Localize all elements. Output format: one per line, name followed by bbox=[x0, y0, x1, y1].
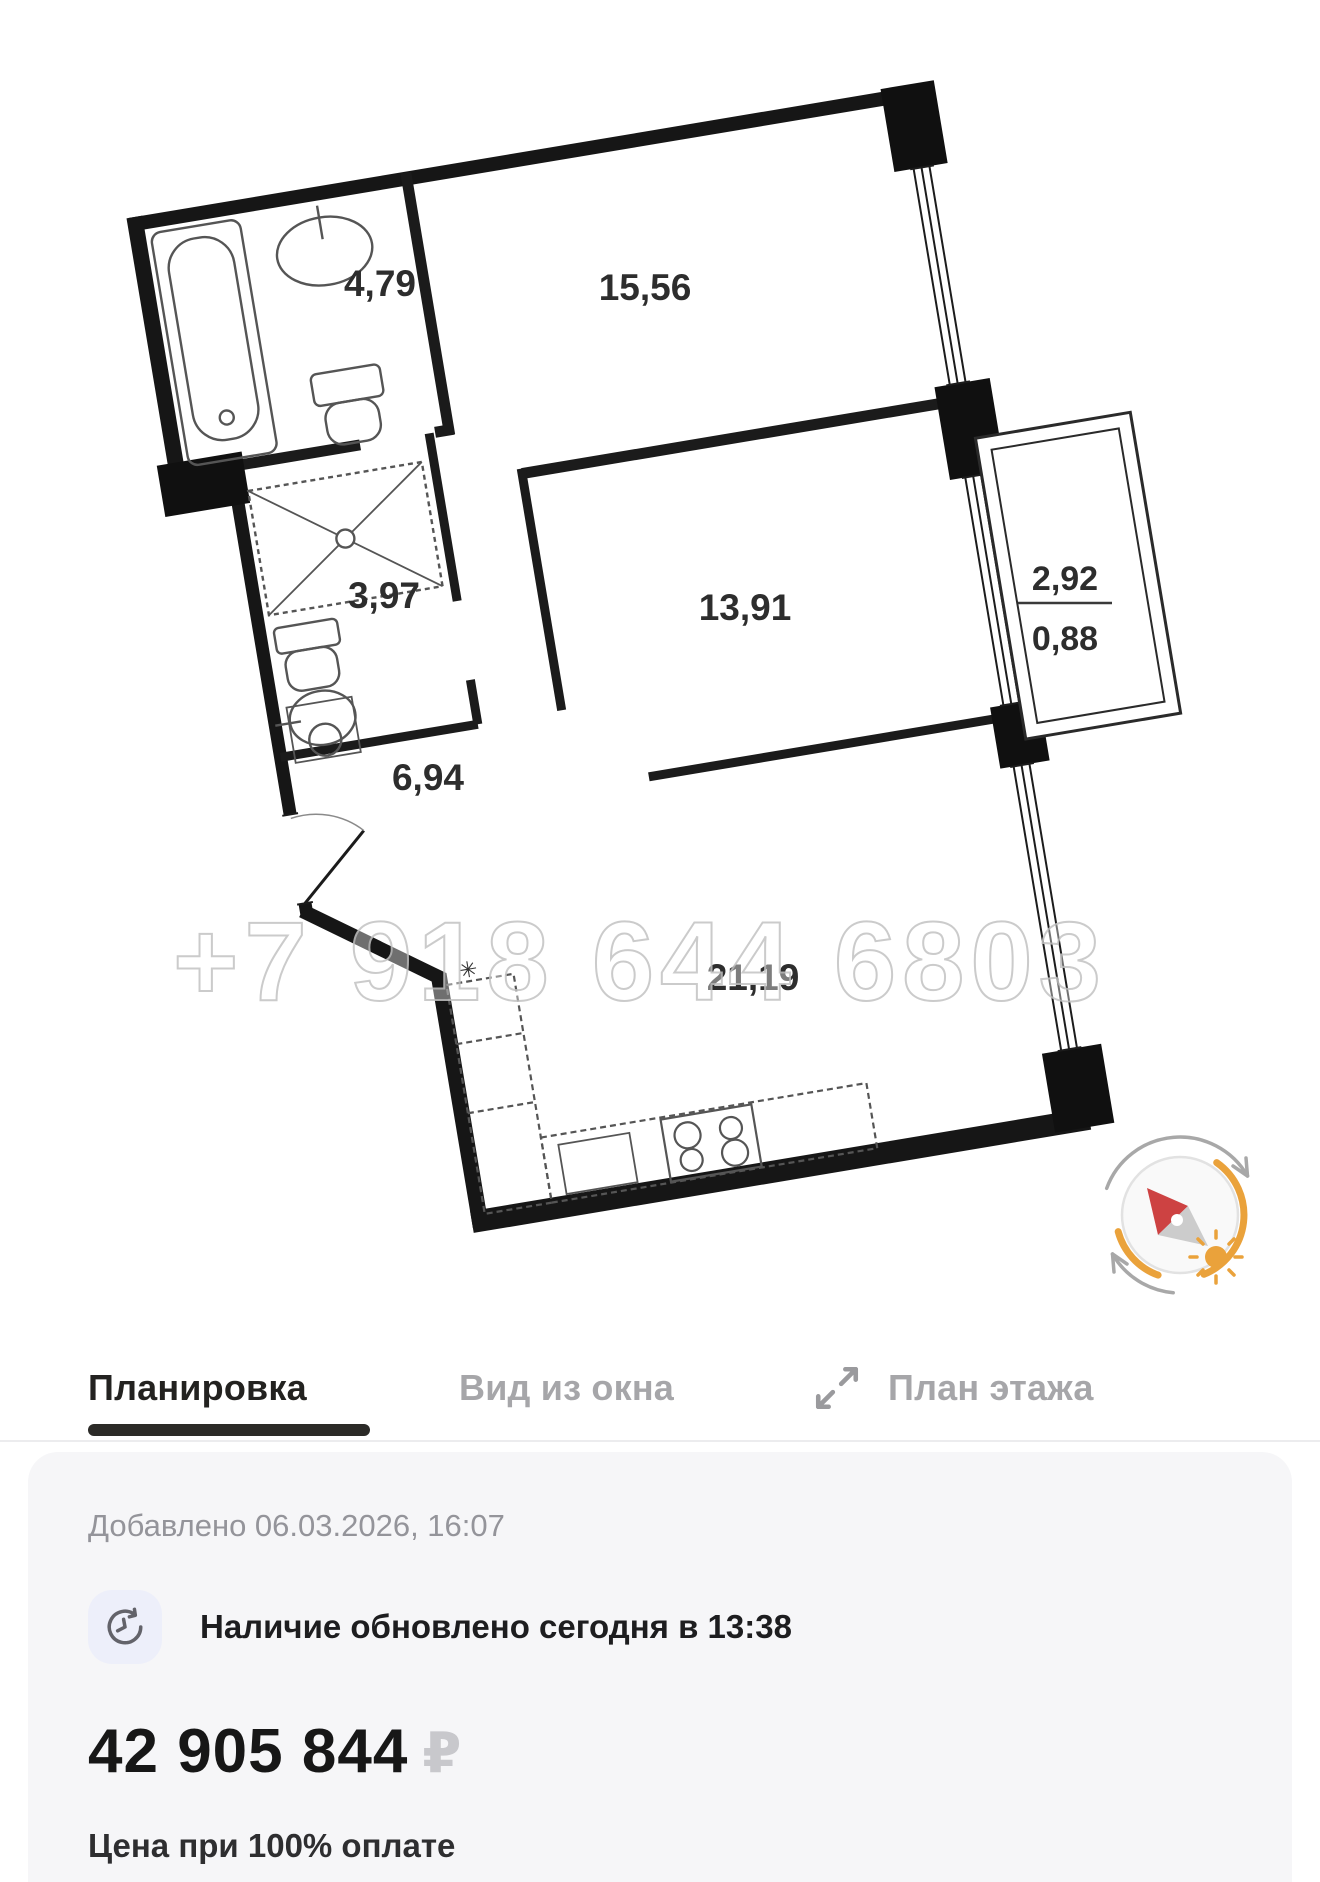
price-row: 42 905 844₽ bbox=[88, 1716, 1234, 1787]
area-bedroom-2: 13,91 bbox=[699, 587, 792, 628]
area-bedroom-1: 15,56 bbox=[599, 267, 692, 308]
media-tabs: Планировка Вид из окна План этажа bbox=[0, 1362, 1320, 1422]
added-date: Добавлено 06.03.2026, 16:07 bbox=[88, 1508, 1234, 1544]
price-card: Добавлено 06.03.2026, 16:07 Наличие обно… bbox=[28, 1452, 1292, 1882]
area-bathroom: 4,79 bbox=[344, 263, 416, 304]
area-wc: 3,97 bbox=[348, 575, 420, 616]
tab-floor-plan-label: План этажа bbox=[888, 1367, 1094, 1409]
expand-icon[interactable] bbox=[812, 1363, 862, 1413]
room-area-labels: 4,79 15,56 3,97 13,91 6,94 21,19 2,92 0,… bbox=[344, 263, 1112, 998]
tab-layout-label: Планировка bbox=[88, 1367, 307, 1409]
tab-window-view-label: Вид из окна bbox=[459, 1367, 674, 1409]
active-tab-underline bbox=[88, 1424, 370, 1436]
availability-text: Наличие обновлено сегодня в 13:38 bbox=[200, 1608, 792, 1646]
phone-watermark: +7 918 644 6803 bbox=[173, 899, 1107, 1024]
price-value: 42 905 844 bbox=[88, 1717, 408, 1786]
balcony-area-full: 2,92 bbox=[1032, 560, 1098, 598]
tab-layout[interactable]: Планировка bbox=[88, 1362, 307, 1414]
sun-icon bbox=[1190, 1231, 1242, 1283]
entrance-door bbox=[282, 803, 374, 905]
floor-plan-image[interactable]: ✳ 4,79 15,56 3,97 13,91 6,94 21,19 2,92 … bbox=[0, 0, 1320, 1330]
balcony-area-reduced: 0,88 bbox=[1032, 620, 1098, 658]
tabs-divider bbox=[0, 1440, 1320, 1442]
bathroom-fixtures bbox=[150, 198, 404, 471]
listing-page: { "floor_plan": { "rooms": [ {"id": "bat… bbox=[0, 0, 1320, 1882]
apartment-geometry: ✳ bbox=[115, 57, 1245, 1260]
currency-symbol: ₽ bbox=[422, 1721, 462, 1786]
clock-refresh-icon bbox=[88, 1590, 162, 1664]
price-note: Цена при 100% оплате bbox=[88, 1827, 1234, 1865]
availability-row: Наличие обновлено сегодня в 13:38 bbox=[88, 1590, 1234, 1664]
tab-floor-plan[interactable]: План этажа bbox=[812, 1362, 1094, 1414]
tab-window-view[interactable]: Вид из окна bbox=[459, 1362, 674, 1414]
compass-icon[interactable] bbox=[1107, 1137, 1248, 1293]
area-hallway: 6,94 bbox=[392, 757, 464, 798]
